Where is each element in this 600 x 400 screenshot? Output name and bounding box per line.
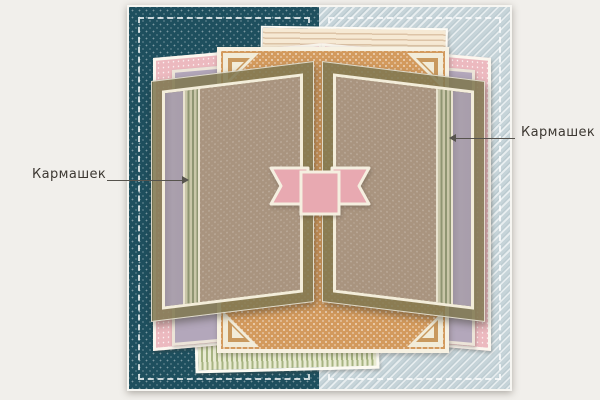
pocket-strip-right: [451, 91, 471, 306]
label-pocket-right: Кармашек: [521, 125, 595, 140]
photo-corner-bottom-right: [407, 311, 443, 347]
striped-strip-left: [185, 89, 200, 304]
photo-corner-bottom-left: [223, 311, 259, 347]
label-pocket-left: Кармашек: [32, 167, 106, 182]
ribbon-banner-icon: [268, 162, 372, 216]
arrow-icon-right: [451, 138, 515, 139]
striped-strip-right: [436, 89, 451, 304]
sketch-stage: Кармашек Кармашек: [0, 0, 600, 400]
arrow-icon-left: [107, 180, 187, 181]
pocket-strip-left: [165, 91, 185, 306]
